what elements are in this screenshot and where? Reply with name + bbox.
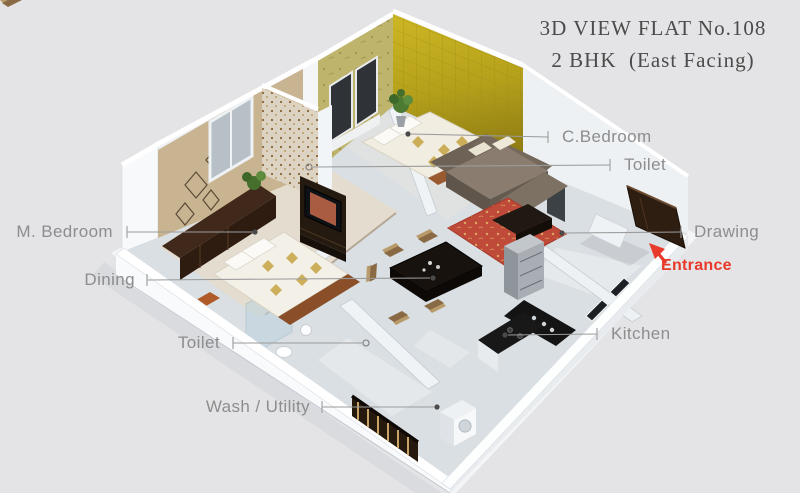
steel-cabinet [504,234,544,300]
label-toilet-top: Toilet [624,156,666,174]
floorplan-page: 3D VIEW FLAT No.108 2 BHK (East Facing) … [0,0,800,493]
label-c-bedroom: C.Bedroom [562,128,652,146]
label-drawing: Drawing [694,223,759,241]
label-toilet-bottom: Toilet [0,334,220,352]
floorplan-3d-render [0,0,800,493]
title-block: 3D VIEW FLAT No.108 2 BHK (East Facing) [510,16,796,73]
label-m-bedroom: M. Bedroom [0,223,113,241]
label-kitchen: Kitchen [611,325,671,343]
label-wash-utility: Wash / Utility [0,398,310,416]
title-line-2: 2 BHK (East Facing) [510,48,796,73]
label-entrance: Entrance [661,257,732,275]
title-line-1: 3D VIEW FLAT No.108 [510,16,796,41]
label-dining: Dining [0,271,135,289]
